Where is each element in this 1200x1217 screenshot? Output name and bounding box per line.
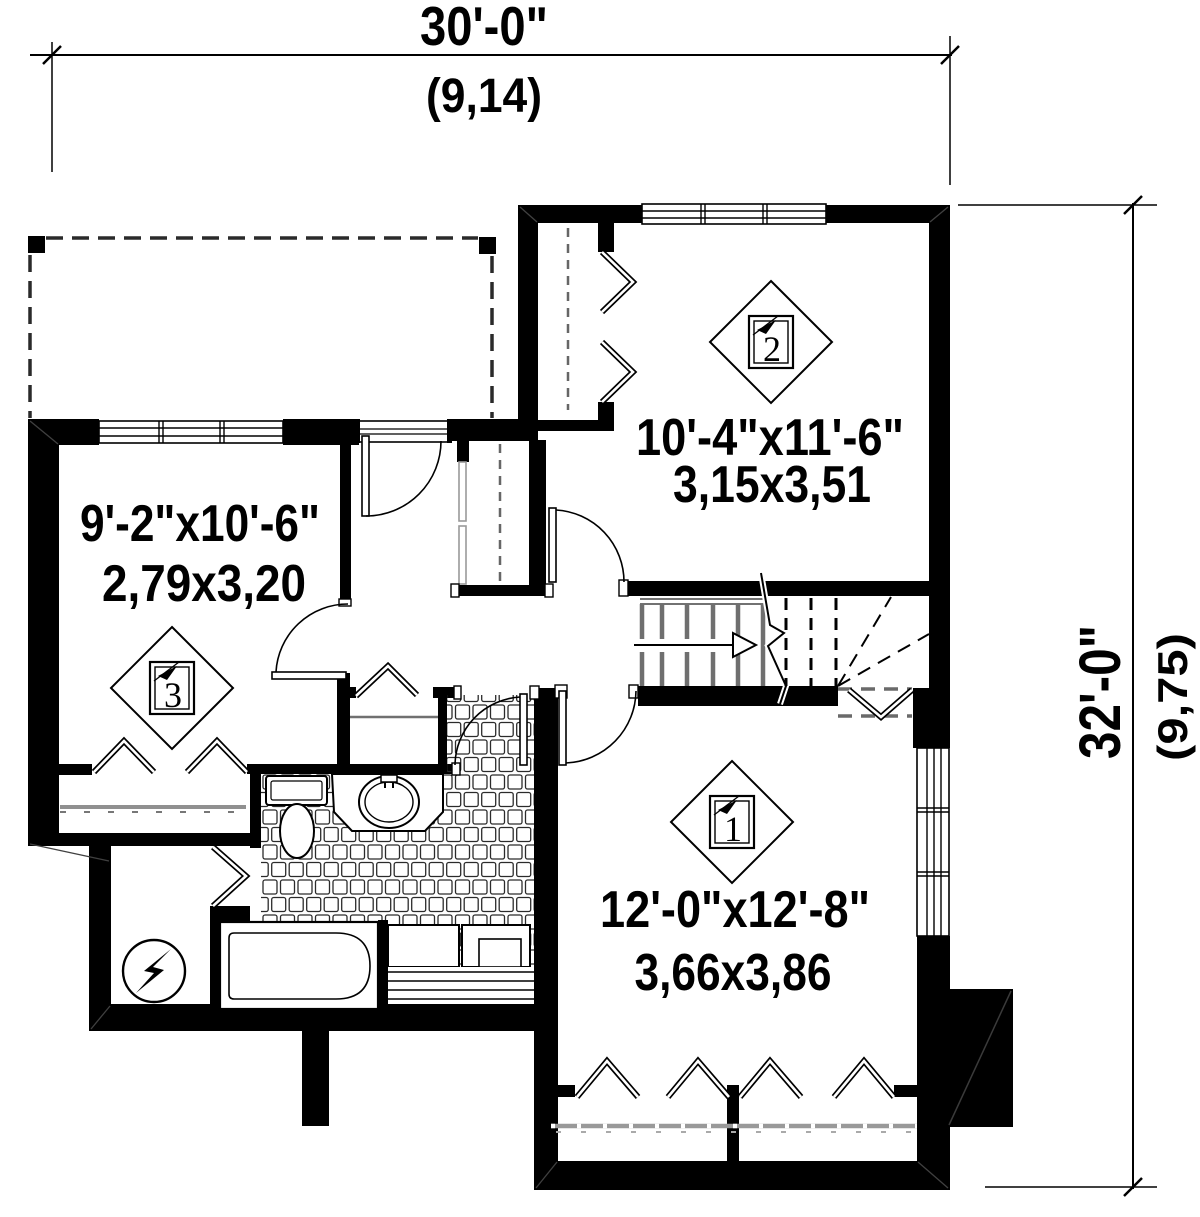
svg-text:32'-0": 32'-0" — [1068, 625, 1133, 759]
svg-text:1: 1 — [724, 809, 742, 849]
svg-text:(9,14): (9,14) — [426, 70, 542, 123]
svg-text:3,15x3,51: 3,15x3,51 — [673, 456, 871, 514]
svg-text:2: 2 — [763, 329, 781, 369]
svg-text:12'-0"x12'-8": 12'-0"x12'-8" — [600, 881, 870, 939]
svg-text:3: 3 — [164, 675, 182, 715]
svg-text:3,66x3,86: 3,66x3,86 — [635, 944, 832, 1002]
svg-text:30'-0": 30'-0" — [420, 0, 548, 57]
svg-text:9'-2"x10'-6": 9'-2"x10'-6" — [80, 495, 320, 553]
svg-text:(9,75): (9,75) — [1149, 633, 1196, 761]
svg-text:2,79x3,20: 2,79x3,20 — [102, 555, 306, 613]
